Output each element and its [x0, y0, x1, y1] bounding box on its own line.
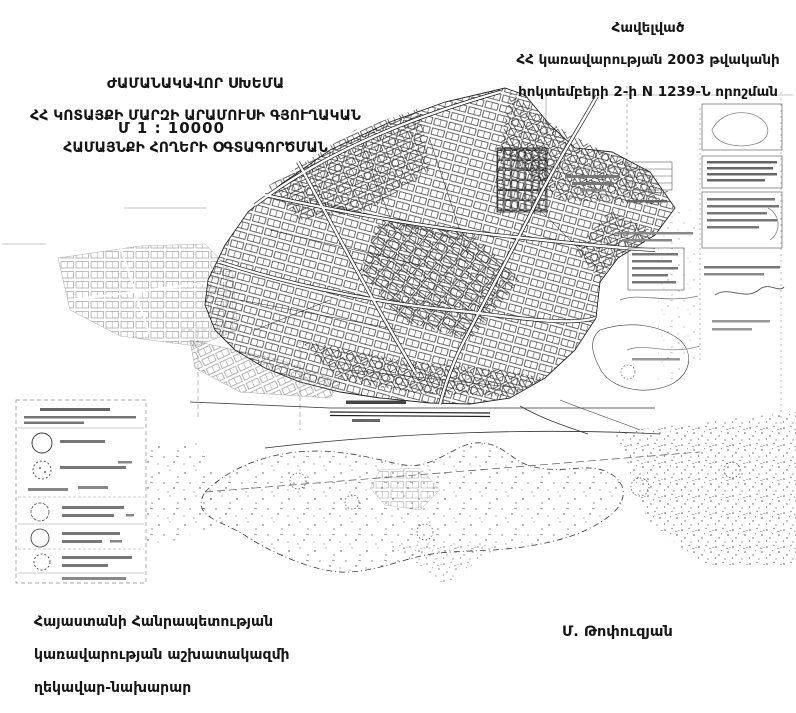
- map-label-illegible: [346, 401, 406, 405]
- official-line: Հայաստանի Հանրապետության: [34, 614, 290, 631]
- legend-box: [16, 400, 146, 583]
- title-line: ՀԱՄԱՅՆՔԻ ՀՈՂԵՐԻ ՕԳՏԱԳՈՐԾՄԱՆ: [8, 140, 383, 156]
- title-line: ԺԱՄԱՆԱԿԱՎՈՐ ՍԽԵՄԱ: [8, 76, 383, 92]
- appendix-line: հոկտեմբերի 2-ի N 1239-Ն որոշման: [500, 84, 796, 100]
- dense-block: [497, 148, 547, 212]
- appendix-line: Հավելված: [500, 20, 796, 36]
- settlement-boundary: [190, 401, 655, 423]
- official-title-block: Հայաստանի Հանրապետության կառավարության ա…: [34, 597, 290, 713]
- official-line: կառավարության աշխատակազմի: [34, 647, 290, 664]
- map-scale-label: Մ 1 : 10000: [118, 119, 225, 137]
- map-title-block: ԺԱՄԱՆԱԿԱՎՈՐ ՍԽԵՄԱ ՀՀ ԿՈՏԱՅՔԻ ՄԱՐԶԻ ԱՐԱՄՈ…: [8, 60, 383, 172]
- appendix-line: ՀՀ կառավարության 2003 թվականի: [500, 52, 796, 68]
- official-line: ղեկավար-նախարար: [34, 680, 290, 697]
- margin-stamp-blocks: [702, 104, 784, 331]
- decree-appendix-block: Հավելված ՀՀ կառավարության 2003 թվականի հ…: [500, 4, 796, 116]
- legend-title-illegible: [40, 408, 110, 411]
- signature-name: Մ. Թոփուզյան: [562, 624, 673, 640]
